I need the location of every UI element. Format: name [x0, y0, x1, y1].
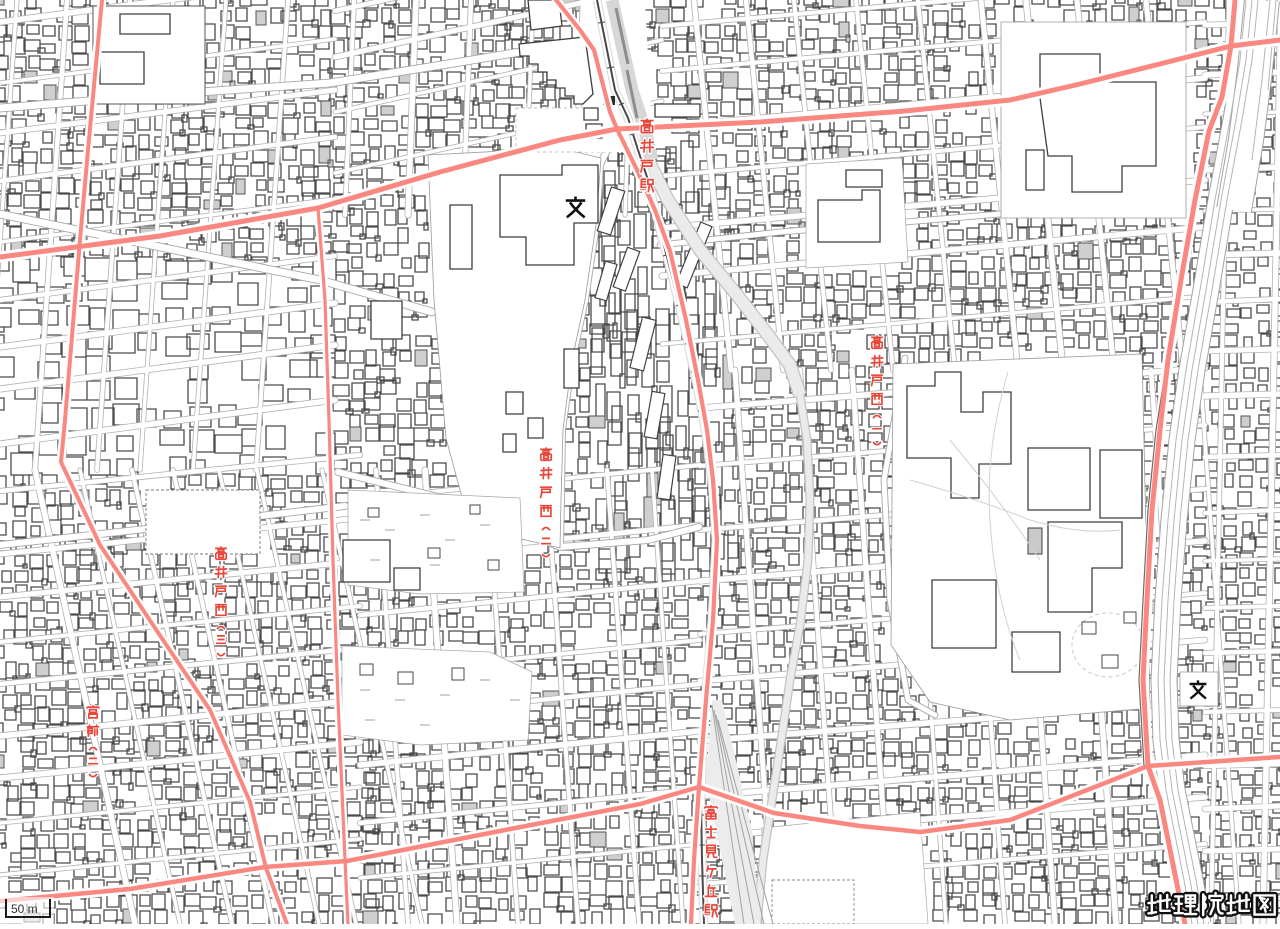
svg-text:50 m: 50 m: [11, 902, 38, 916]
